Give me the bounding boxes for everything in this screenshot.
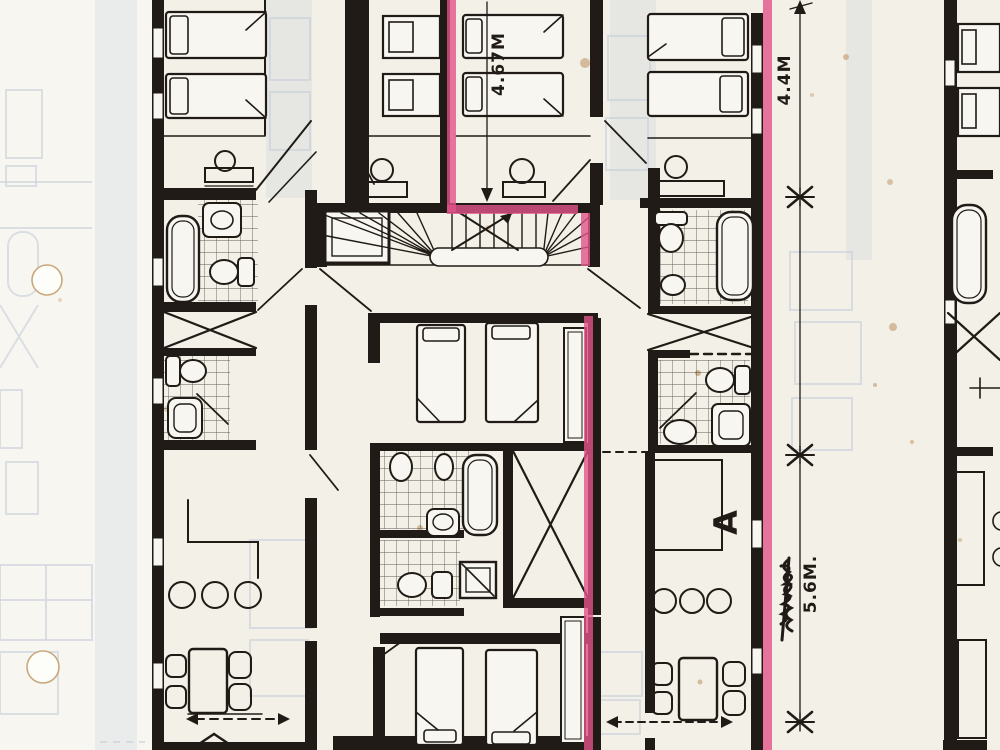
washbasin-icon bbox=[427, 509, 459, 536]
bathtub-icon bbox=[167, 216, 199, 302]
bed-icon bbox=[166, 12, 266, 58]
bed-icon bbox=[463, 73, 563, 116]
bed-icon bbox=[486, 323, 538, 422]
bed-icon bbox=[416, 648, 463, 745]
bed-icon bbox=[417, 325, 465, 422]
washbasin-icon bbox=[168, 398, 202, 438]
dimension-label-top-right: 4.4M bbox=[775, 54, 795, 105]
bed-icon bbox=[648, 72, 748, 116]
dimension-label-center: 4.67M bbox=[489, 32, 509, 96]
bed-icon bbox=[958, 24, 1000, 72]
washbasin-icon bbox=[661, 275, 685, 295]
dimension-label-bottom-right: 5.6M. bbox=[801, 555, 821, 614]
bed-icon bbox=[648, 14, 748, 60]
bathtub-icon bbox=[952, 205, 986, 303]
shower-icon bbox=[460, 562, 496, 598]
bed-icon bbox=[958, 88, 1000, 136]
bed-icon bbox=[486, 650, 537, 745]
stair-landing bbox=[430, 248, 548, 266]
punch-hole bbox=[27, 651, 59, 683]
washbasin-icon bbox=[203, 203, 241, 237]
wardrobe-icon bbox=[564, 328, 586, 442]
washbasin-icon bbox=[712, 404, 750, 446]
highlight-line-vertical-left bbox=[447, 0, 456, 212]
room-a-label: A bbox=[707, 509, 745, 535]
bathtub-icon bbox=[717, 212, 753, 300]
highlight-line-stair-top bbox=[447, 205, 578, 214]
bathtub-icon bbox=[463, 455, 497, 535]
bed-icon bbox=[383, 16, 440, 58]
punch-hole bbox=[32, 265, 62, 295]
wardrobe-icon bbox=[561, 617, 585, 743]
scanned-floor-plan-page: 4.67M 4.4M 5.6M. A bbox=[0, 0, 1000, 750]
washbasin-icon bbox=[664, 420, 696, 444]
bed-icon bbox=[166, 74, 266, 118]
floor-plan-drawing: 4.67M 4.4M 5.6M. A bbox=[0, 0, 1000, 750]
toilet-icon bbox=[706, 366, 750, 394]
highlight-line-stair-right bbox=[581, 213, 590, 266]
bed-icon bbox=[383, 74, 440, 116]
toilet-icon bbox=[210, 258, 254, 286]
highlight-line-center-right bbox=[584, 316, 593, 750]
bed-icon bbox=[463, 15, 563, 58]
highlight-line-exterior-right bbox=[763, 0, 772, 750]
